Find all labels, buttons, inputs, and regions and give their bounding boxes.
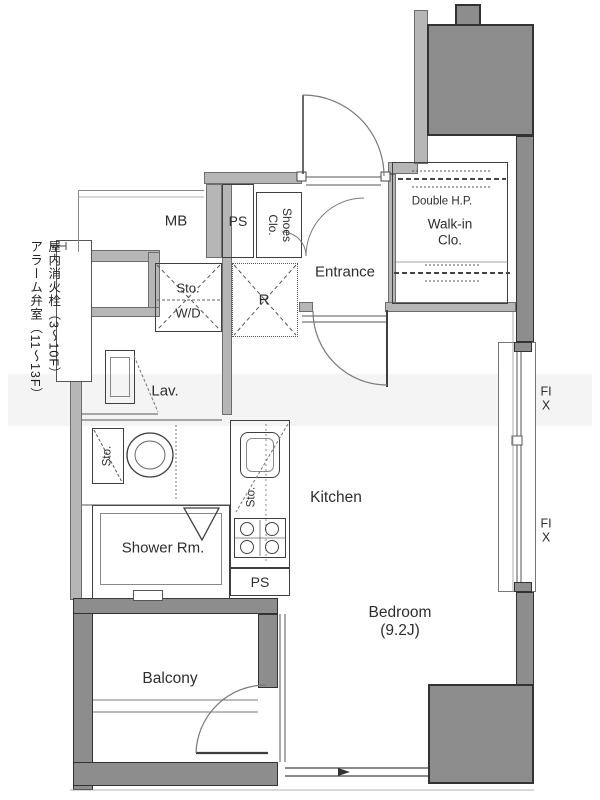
room-label-entrance: Entrance: [315, 263, 375, 280]
label-storage-kitchen: Sto.: [245, 487, 258, 507]
room-label-shoes-closet: Shoes Clo.: [265, 201, 293, 249]
room-label-ps-top: PS: [229, 213, 248, 229]
label-double-hp: Double H.P.: [412, 195, 473, 208]
room-label-mb: MB: [165, 212, 188, 229]
label-fix-upper: FIX: [540, 385, 553, 414]
label-refrigerator: R: [259, 291, 270, 308]
label-fix-lower: FIX: [540, 517, 553, 546]
room-label-ps-bottom: PS: [251, 574, 270, 590]
room-label-lavatory: Lav.: [151, 382, 178, 399]
bedroom-size: (9.2J): [369, 622, 432, 640]
room-label-kitchen: Kitchen: [310, 489, 362, 507]
room-label-bedroom: Bedroom (9.2J): [369, 604, 432, 640]
plan-lines: [0, 0, 600, 800]
label-storage-top: Sto.: [176, 282, 199, 297]
floor-plan: MB PS Shoes Clo. Entrance Double H.P. Wa…: [0, 0, 600, 800]
room-label-shower: Shower Rm.: [122, 539, 205, 556]
label-storage-toilet: Sto.: [101, 446, 114, 466]
note-fire-hydrant: 屋内消火栓（3〜10F） アラーム弁室（11〜13F）: [26, 240, 62, 490]
bedroom-name: Bedroom: [369, 604, 432, 622]
room-label-walk-in-closet: Walk-in Clo.: [418, 216, 482, 247]
room-label-balcony: Balcony: [142, 670, 197, 688]
label-washer-dryer: W/D: [175, 307, 200, 322]
